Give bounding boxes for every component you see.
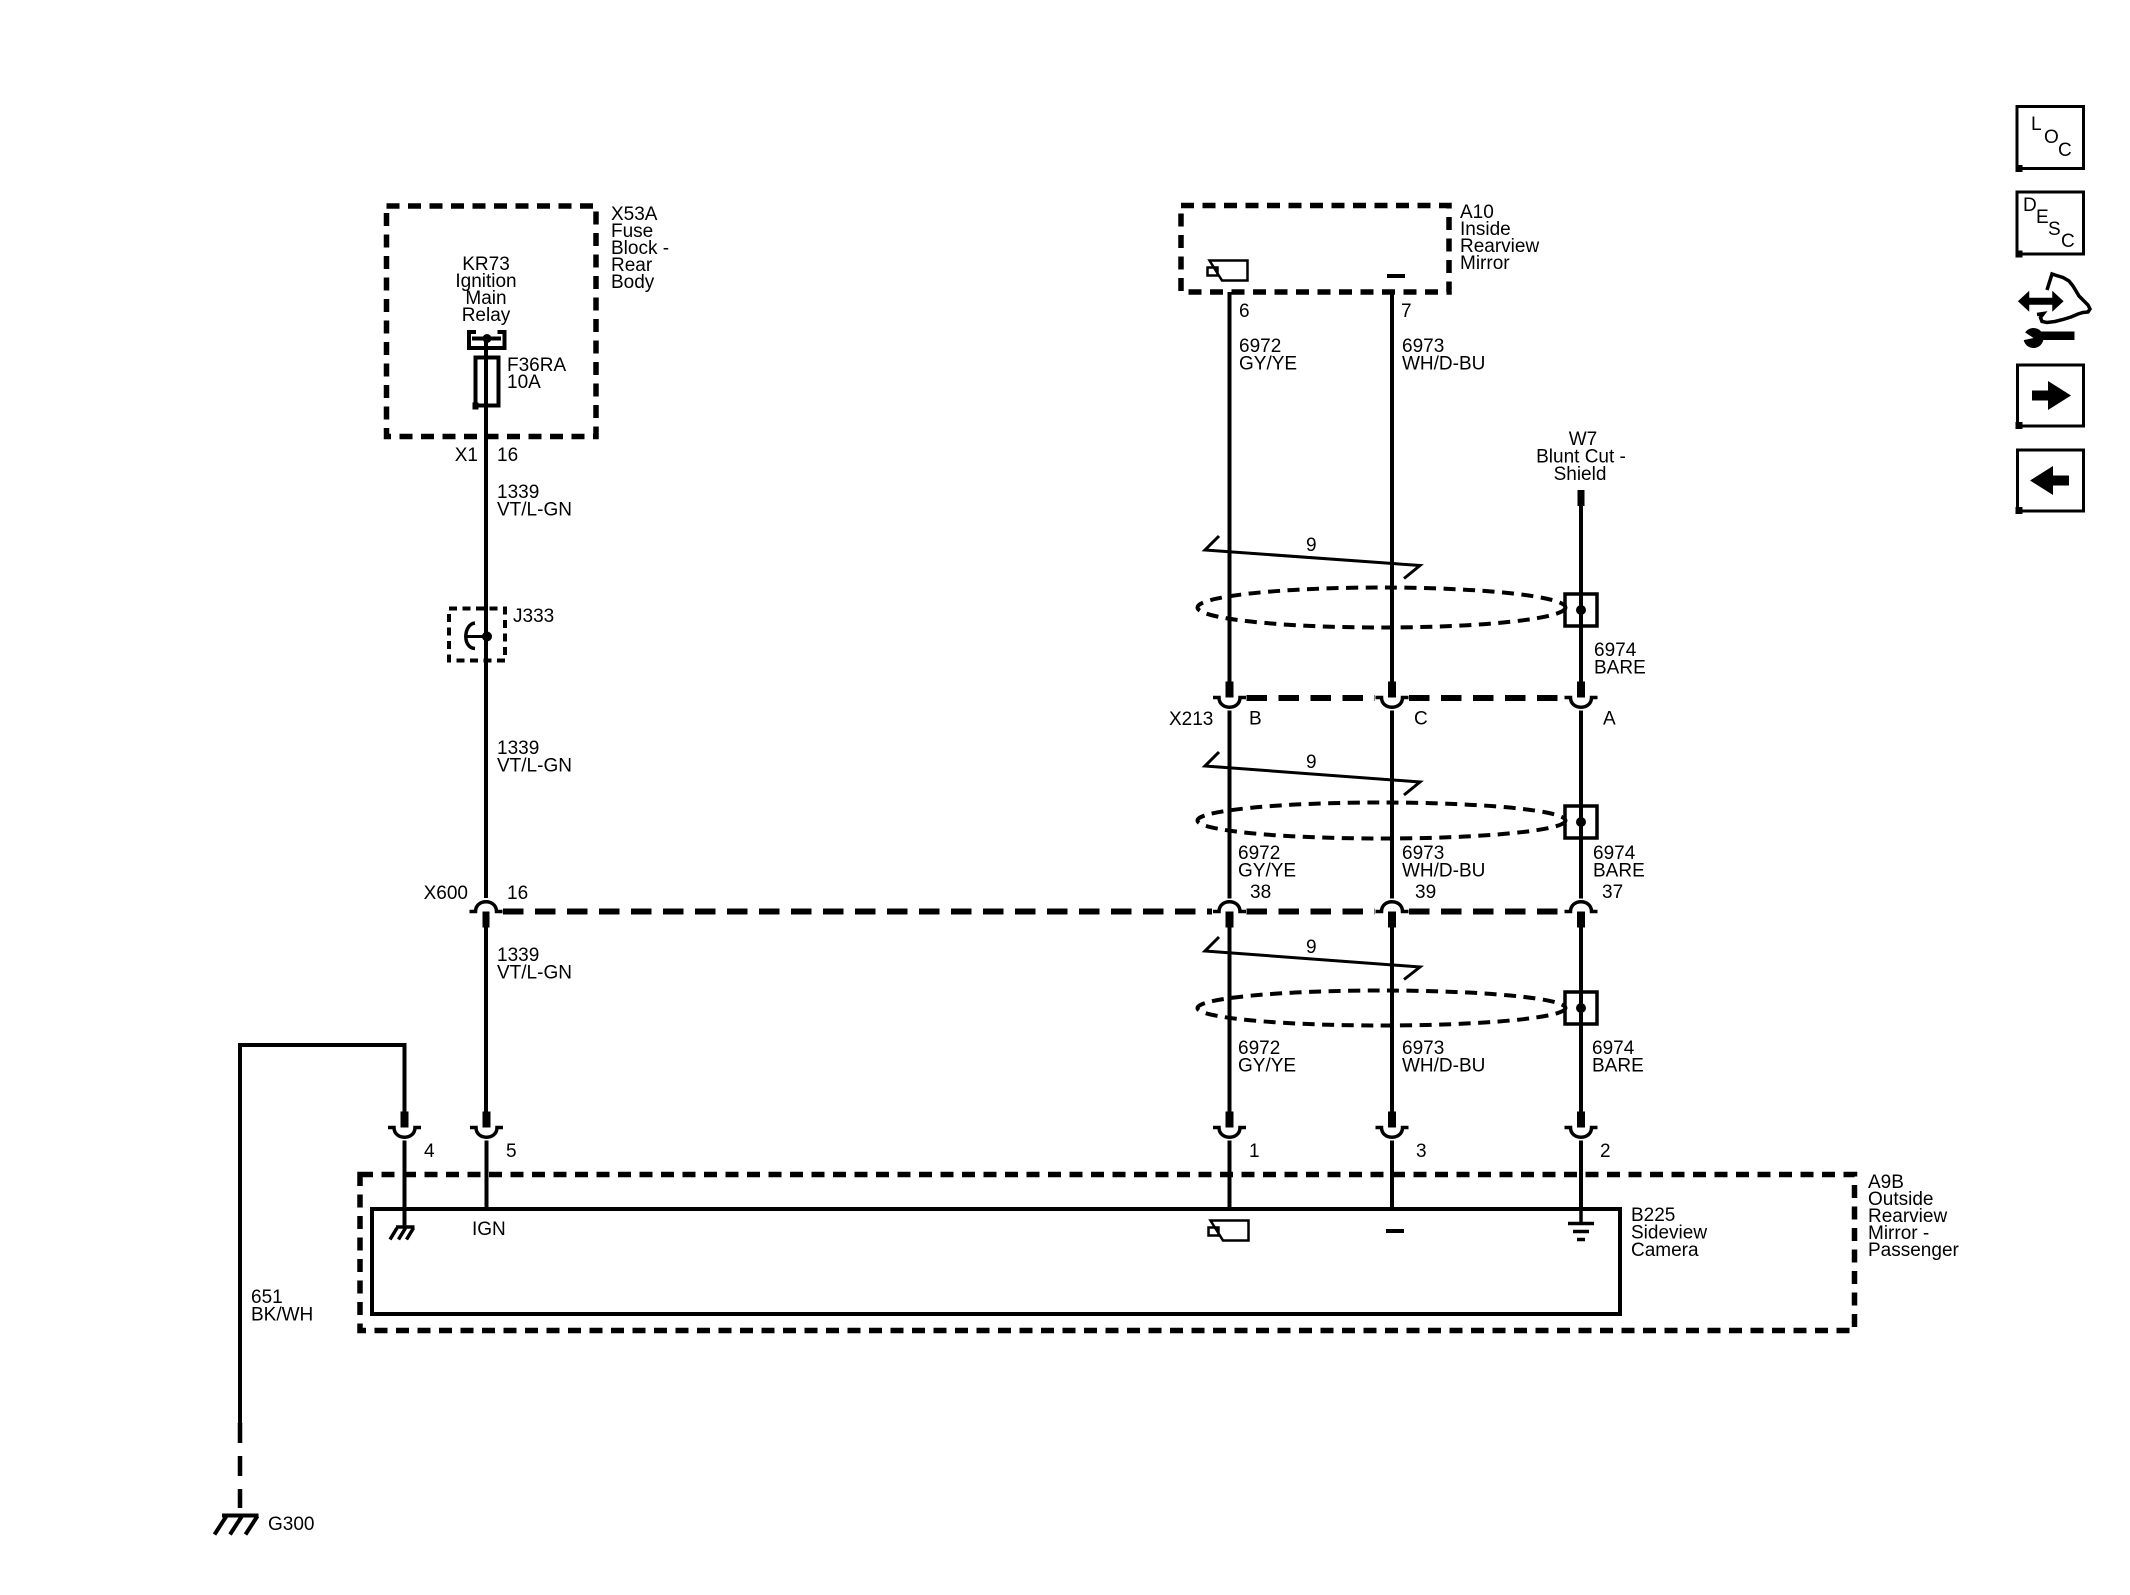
svg-text:5: 5 (506, 1141, 517, 1162)
svg-text:C: C (2058, 140, 2072, 161)
svg-text:IGN: IGN (472, 1219, 506, 1240)
svg-text:Relay: Relay (462, 305, 511, 326)
svg-text:16: 16 (497, 445, 518, 466)
svg-text:4: 4 (424, 1141, 435, 1162)
svg-text:Mirror: Mirror (1460, 253, 1510, 274)
svg-text:6: 6 (1239, 301, 1250, 322)
svg-text:9: 9 (1306, 752, 1317, 773)
svg-text:C: C (1414, 709, 1428, 730)
svg-text:BARE: BARE (1592, 1056, 1644, 1077)
svg-text:GY/YE: GY/YE (1239, 354, 1297, 375)
svg-text:16: 16 (507, 883, 528, 904)
svg-text:BARE: BARE (1594, 658, 1646, 679)
svg-text:Body: Body (611, 272, 655, 293)
svg-text:38: 38 (1250, 882, 1271, 903)
svg-text:1: 1 (1249, 1141, 1260, 1162)
svg-text:B: B (1249, 709, 1262, 730)
svg-text:S: S (2048, 219, 2061, 240)
svg-text:2: 2 (1600, 1141, 1611, 1162)
svg-text:10A: 10A (507, 372, 541, 393)
svg-text:VT/L-GN: VT/L-GN (497, 963, 572, 984)
svg-text:Shield: Shield (1554, 464, 1607, 485)
svg-text:7: 7 (1401, 301, 1412, 322)
svg-text:D: D (2023, 195, 2037, 216)
svg-text:G300: G300 (268, 1514, 314, 1535)
svg-text:VT/L-GN: VT/L-GN (497, 500, 572, 521)
svg-text:Passenger: Passenger (1868, 1240, 1960, 1261)
svg-text:GY/YE: GY/YE (1238, 861, 1296, 882)
svg-text:Camera: Camera (1631, 1240, 1699, 1261)
svg-text:O: O (2044, 127, 2059, 148)
svg-text:VT/L-GN: VT/L-GN (497, 756, 572, 777)
svg-text:WH/D-BU: WH/D-BU (1402, 1056, 1485, 1077)
svg-text:J333: J333 (513, 606, 554, 627)
svg-text:E: E (2036, 207, 2049, 228)
svg-text:3: 3 (1416, 1141, 1427, 1162)
svg-text:BK/WH: BK/WH (251, 1305, 313, 1326)
svg-text:X600: X600 (424, 883, 468, 904)
svg-text:C: C (2061, 231, 2075, 252)
svg-text:WH/D-BU: WH/D-BU (1402, 861, 1485, 882)
svg-text:9: 9 (1306, 937, 1317, 958)
svg-text:37: 37 (1602, 882, 1623, 903)
svg-text:GY/YE: GY/YE (1238, 1056, 1296, 1077)
svg-text:X1: X1 (455, 445, 478, 466)
svg-text:WH/D-BU: WH/D-BU (1402, 354, 1485, 375)
svg-text:L: L (2031, 114, 2042, 135)
svg-text:39: 39 (1415, 882, 1436, 903)
svg-text:9: 9 (1306, 535, 1317, 556)
svg-text:BARE: BARE (1593, 861, 1645, 882)
svg-text:A: A (1603, 709, 1616, 730)
svg-text:X213: X213 (1169, 709, 1213, 730)
